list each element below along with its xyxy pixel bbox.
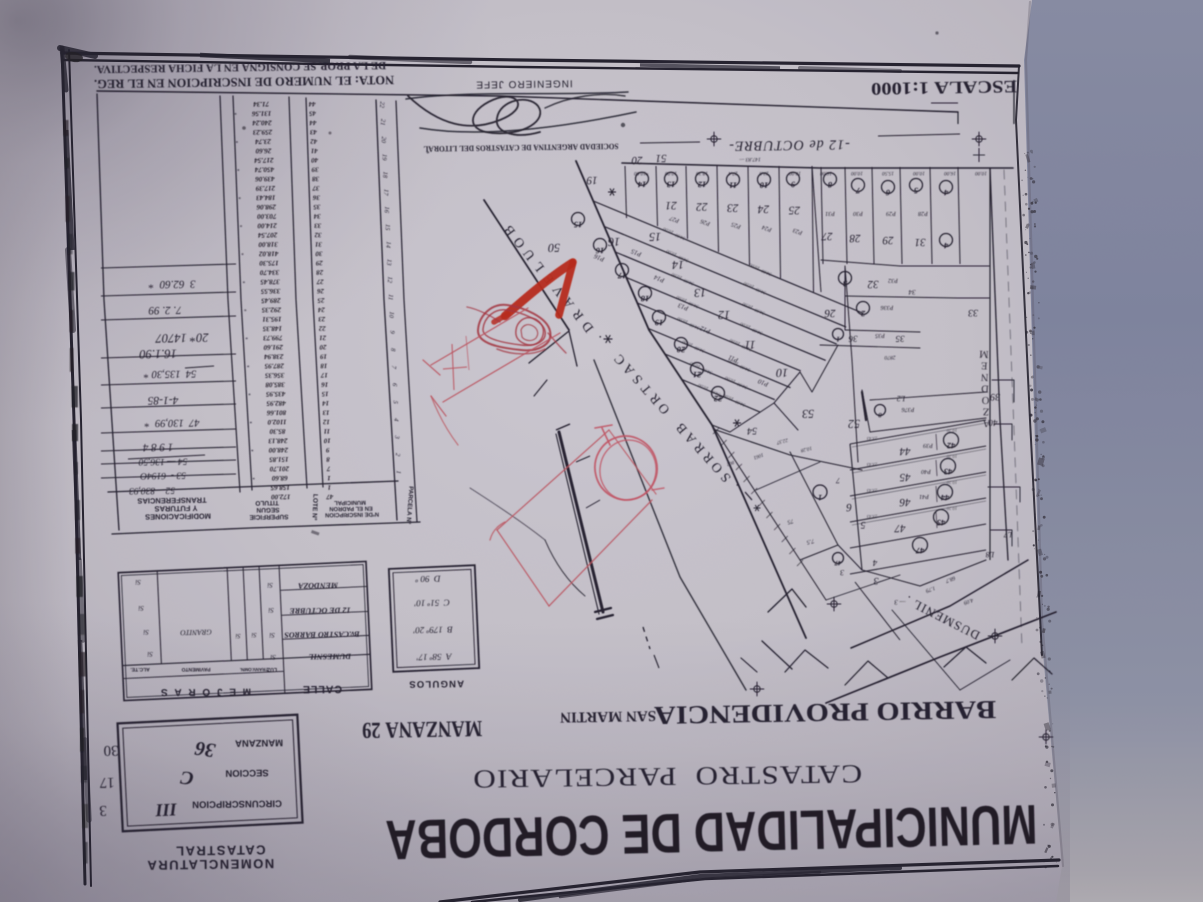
svg-text:35: 35	[313, 203, 321, 210]
svg-text:15: 15	[383, 224, 391, 231]
svg-text:CIRCUNSCRIPCION: CIRCUNSCRIPCION	[192, 797, 282, 809]
svg-text:Z: Z	[982, 405, 989, 416]
svg-text:MODIFICACIONES: MODIFICACIONES	[145, 512, 211, 522]
svg-text:248.00: 248.00	[268, 446, 289, 454]
svg-text:50: 50	[548, 241, 560, 255]
svg-text:37: 37	[312, 184, 320, 191]
svg-text:44: 44	[899, 445, 911, 457]
svg-text:482.95: 482.95	[266, 399, 287, 407]
svg-text:19: 19	[319, 352, 326, 359]
svg-text:CATASTRAL: CATASTRAL	[174, 842, 265, 858]
svg-text:33: 33	[968, 307, 979, 318]
svg-text:Bv.CASTRO BARROS: Bv.CASTRO BARROS	[284, 629, 361, 639]
svg-text:SAN MARTIN: SAN MARTIN	[560, 707, 656, 725]
svg-text:20* 14707: 20* 14707	[155, 330, 209, 345]
svg-text:15: 15	[321, 390, 328, 397]
svg-text:29: 29	[882, 234, 894, 246]
svg-text:54: 54	[747, 425, 757, 436]
svg-text:47: 47	[326, 493, 334, 500]
svg-text:1: 1	[327, 474, 331, 481]
svg-text:207.54: 207.54	[257, 231, 278, 239]
svg-text:Si: Si	[251, 631, 256, 638]
svg-text:378.45: 378.45	[260, 278, 281, 286]
svg-text:PAVIMENTO: PAVIMENTO	[181, 666, 210, 672]
svg-text:27: 27	[316, 278, 324, 285]
svg-text:P40: P40	[921, 468, 932, 475]
svg-text:BARRIO PROVIDENCIA: BARRIO PROVIDENCIA	[654, 695, 997, 730]
svg-text:47: 47	[894, 522, 906, 534]
svg-text:— 3: — 3	[894, 598, 907, 606]
svg-text:TRANV.OMN.: TRANV.OMN.	[240, 667, 269, 672]
svg-text:MANZANA 29: MANZANA 29	[362, 716, 482, 743]
svg-text:SUPERFICIE: SUPERFICIE	[249, 513, 289, 521]
svg-text:17: 17	[99, 774, 115, 790]
svg-text:ESCALA 1:1000: ESCALA 1:1000	[871, 77, 1018, 100]
svg-text:291.60: 291.60	[263, 343, 284, 351]
svg-text:GRANITO: GRANITO	[180, 628, 212, 638]
svg-text:26: 26	[824, 307, 836, 319]
svg-text:39: 39	[311, 165, 319, 172]
svg-text:43: 43	[944, 467, 953, 476]
svg-text:16: 16	[321, 380, 328, 387]
svg-text:4: 4	[944, 188, 949, 197]
svg-text:P32: P32	[888, 277, 899, 283]
svg-text:2870: 2870	[884, 354, 895, 360]
svg-text:M: M	[978, 348, 989, 360]
svg-text:23.74: 23.74	[255, 137, 272, 145]
svg-text:44: 44	[308, 100, 316, 107]
svg-text:TRANSFERENCIAS: TRANSFERENCIAS	[137, 496, 206, 506]
svg-text:46: 46	[899, 496, 911, 508]
svg-text:3: 3	[99, 802, 107, 818]
svg-text:III: III	[154, 800, 178, 821]
svg-text:Si: Si	[143, 628, 149, 636]
svg-text:A 58º 17': A 58º 17'	[415, 652, 452, 663]
svg-text:41: 41	[311, 147, 319, 154]
svg-text:36: 36	[194, 737, 218, 762]
svg-text:9: 9	[791, 180, 795, 189]
svg-text:356.35: 356.35	[265, 371, 286, 379]
svg-text:16.1.90: 16.1.90	[138, 347, 177, 362]
svg-text:Si: Si	[138, 604, 144, 612]
svg-text:439.06: 439.06	[255, 175, 276, 183]
svg-text:10.00: 10.00	[665, 170, 677, 176]
svg-text:22: 22	[318, 324, 326, 331]
svg-text:148.35: 148.35	[262, 324, 282, 332]
svg-text:292.35: 292.35	[261, 306, 282, 314]
svg-text:10: 10	[323, 437, 330, 444]
svg-text:248.13: 248.13	[268, 436, 289, 444]
svg-text:23: 23	[318, 315, 326, 322]
svg-text:P31: P31	[825, 210, 836, 216]
svg-text:M E J O R A S: M E J O R A S	[159, 686, 251, 698]
svg-text:15.50: 15.50	[882, 170, 894, 176]
svg-text:6: 6	[846, 501, 852, 513]
svg-text:34: 34	[313, 212, 321, 219]
svg-text:16: 16	[595, 246, 604, 255]
svg-text:10.00: 10.00	[913, 170, 925, 176]
svg-text:P39: P39	[923, 442, 934, 448]
svg-text:23.43: 23.43	[866, 514, 877, 519]
svg-text:DUMESNIL: DUMESNIL	[309, 652, 352, 662]
svg-text:10.00: 10.00	[634, 170, 646, 176]
svg-text:Si: Si	[147, 650, 153, 658]
svg-text:85.30: 85.30	[269, 427, 285, 435]
svg-text:26: 26	[316, 287, 324, 294]
svg-text:25: 25	[317, 296, 325, 303]
svg-text:5: 5	[860, 519, 865, 530]
svg-text:10: 10	[760, 180, 768, 189]
svg-text:CALLE: CALLE	[302, 683, 342, 695]
svg-text:Si: Si	[268, 606, 274, 614]
svg-text:21: 21	[379, 119, 387, 126]
svg-text:20: 20	[677, 345, 686, 354]
svg-text:15: 15	[574, 220, 582, 229]
svg-text:799.73: 799.73	[263, 334, 283, 342]
svg-text:287.95: 287.95	[264, 362, 285, 370]
svg-text:10.20: 10.20	[946, 506, 957, 511]
svg-text:47: 47	[915, 546, 925, 555]
svg-text:71.34: 71.34	[253, 100, 269, 108]
svg-text:1: 1	[818, 493, 822, 502]
svg-text:P376: P376	[902, 406, 916, 412]
svg-text:36: 36	[848, 334, 859, 344]
svg-text:P28: P28	[918, 210, 929, 216]
svg-text:38: 38	[311, 175, 319, 182]
svg-text:P41: P41	[919, 493, 930, 500]
svg-text:214.00: 214.00	[257, 221, 278, 229]
svg-text:24: 24	[317, 306, 325, 313]
svg-text:42: 42	[310, 137, 318, 144]
svg-text:418.02: 418.02	[258, 249, 279, 257]
svg-text:201.70: 201.70	[269, 465, 290, 473]
svg-text:P35: P35	[875, 332, 886, 338]
svg-text:E: E	[981, 359, 988, 370]
svg-text:238.94: 238.94	[264, 352, 285, 360]
svg-text:20: 20	[319, 343, 327, 350]
svg-text:54 135,30 *: 54 135,30 *	[143, 368, 196, 380]
svg-text:13: 13	[322, 409, 329, 416]
svg-text:53: 53	[802, 407, 814, 421]
svg-text:5: 5	[914, 186, 918, 195]
svg-text:298.06: 298.06	[256, 203, 277, 211]
svg-text:1: 1	[836, 335, 840, 344]
svg-text:Si: Si	[235, 632, 240, 639]
svg-text:18: 18	[320, 362, 327, 369]
svg-text:1: 1	[328, 483, 332, 490]
svg-text:21: 21	[665, 199, 677, 211]
svg-text:31: 31	[914, 236, 926, 248]
svg-text:40: 40	[311, 156, 319, 163]
svg-text:20: 20	[631, 154, 643, 166]
svg-text:23.6: 23.6	[759, 170, 769, 176]
svg-text:LOTE Nº: LOTE Nº	[311, 494, 319, 521]
svg-text:318.00: 318.00	[258, 240, 279, 248]
svg-text:52 - 830,93: 52 - 830,93	[129, 485, 175, 496]
svg-text:23.43: 23.43	[866, 488, 877, 493]
svg-text:13: 13	[667, 180, 675, 189]
svg-text:32: 32	[314, 231, 322, 238]
svg-text:44: 44	[941, 493, 950, 502]
svg-text:18: 18	[640, 294, 649, 303]
svg-text:289.45: 289.45	[261, 296, 282, 304]
svg-text:26.60: 26.60	[255, 147, 272, 155]
svg-text:29: 29	[315, 259, 323, 266]
svg-text:D 90 º: D 90 º	[415, 574, 441, 585]
svg-text:44: 44	[309, 119, 317, 126]
svg-text:10.20: 10.20	[946, 454, 957, 459]
svg-text:23.43: 23.43	[866, 462, 877, 467]
svg-text:ANGULOS: ANGULOS	[408, 678, 464, 690]
svg-text:Si: Si	[135, 578, 141, 586]
svg-text:151.85: 151.85	[269, 455, 289, 463]
svg-text:23.43: 23.43	[866, 436, 877, 441]
svg-text:2: 2	[861, 309, 866, 318]
svg-text:12: 12	[698, 180, 706, 189]
svg-text:Si: Si	[270, 653, 276, 661]
svg-text:4: 4	[944, 241, 949, 250]
svg-text:21: 21	[319, 334, 327, 341]
svg-text:336.55: 336.55	[260, 287, 281, 295]
svg-text:CATASTRO PARCELARIO: CATASTRO PARCELARIO	[472, 759, 862, 793]
svg-text:17: 17	[320, 371, 327, 378]
svg-text:385.08: 385.08	[265, 380, 286, 388]
svg-text:P336: P336	[881, 304, 895, 310]
svg-text:10.00: 10.00	[851, 170, 863, 176]
svg-text:45: 45	[308, 109, 316, 116]
svg-text:Si: Si	[269, 631, 275, 639]
svg-text:14: 14	[638, 180, 646, 189]
svg-text:40: 40	[988, 418, 998, 428]
svg-text:12: 12	[322, 418, 329, 425]
svg-text:10.00: 10.00	[789, 170, 801, 176]
svg-text:11: 11	[729, 180, 737, 189]
svg-text:36: 36	[312, 193, 320, 200]
svg-text:16: 16	[608, 235, 620, 249]
svg-text:435.95: 435.95	[265, 390, 286, 398]
svg-text:24: 24	[757, 203, 769, 215]
svg-text:10.00: 10.00	[975, 170, 987, 176]
svg-text:L8: L8	[986, 550, 996, 559]
svg-text:11: 11	[387, 294, 395, 301]
svg-text:32: 32	[867, 278, 880, 290]
svg-text:10.20: 10.20	[946, 480, 957, 485]
svg-text:B 179º 20': B 179º 20'	[412, 625, 453, 636]
svg-text:18.30: 18.30	[696, 170, 708, 176]
svg-text:259.23: 259.23	[252, 128, 273, 136]
svg-text:10.20: 10.20	[946, 428, 957, 433]
svg-text:175.30: 175.30	[259, 259, 279, 267]
svg-text:1102.0: 1102.0	[267, 418, 286, 426]
svg-text:51: 51	[655, 152, 666, 164]
svg-text:19: 19	[586, 174, 598, 186]
svg-text:16.00: 16.00	[944, 170, 956, 176]
svg-text:MUNICIPAL: MUNICIPAL	[334, 499, 366, 505]
svg-text:4: 4	[872, 558, 877, 568]
svg-text:27: 27	[821, 230, 833, 242]
svg-text:28: 28	[849, 232, 861, 244]
svg-text:703.00: 703.00	[257, 212, 277, 220]
svg-text:1 9 8 4: 1 9 8 4	[142, 441, 173, 453]
svg-text:C 51º 10': C 51º 10'	[413, 598, 450, 609]
svg-text:17: 17	[617, 271, 626, 280]
svg-text:3: 3	[393, 434, 400, 439]
svg-text:43: 43	[309, 128, 317, 135]
svg-text:3: 3	[873, 575, 879, 586]
svg-text:P29: P29	[886, 210, 897, 216]
svg-text:47: 47	[834, 559, 842, 566]
svg-text:45: 45	[937, 518, 946, 527]
svg-text:ALC.TE.: ALC.TE.	[130, 666, 150, 672]
svg-text:7. 2. 99: 7. 2. 99	[148, 304, 182, 316]
svg-text:42: 42	[947, 441, 956, 450]
svg-text:22: 22	[696, 200, 708, 212]
svg-text:21: 21	[693, 370, 702, 379]
svg-text:L7: L7	[1003, 530, 1014, 539]
svg-text:14: 14	[322, 399, 329, 406]
svg-text:-12 de OCTUBRE-: -12 de OCTUBRE-	[728, 136, 850, 153]
svg-text:47 130,99 *: 47 130,99 *	[144, 417, 200, 429]
svg-text:19: 19	[655, 318, 663, 327]
svg-text:O: O	[981, 394, 990, 405]
svg-text:68.60: 68.60	[271, 474, 287, 482]
svg-text:147.83 —: 147.83 —	[739, 156, 761, 163]
svg-text:217.54: 217.54	[254, 156, 275, 164]
svg-text:MANZANA: MANZANA	[235, 737, 283, 749]
svg-text:15: 15	[649, 230, 661, 244]
svg-text:25: 25	[788, 204, 800, 216]
svg-text:N: N	[980, 371, 989, 382]
svg-text:33: 33	[314, 221, 322, 228]
svg-text:10: 10	[776, 366, 788, 380]
svg-text:34: 34	[908, 288, 917, 296]
svg-text:52: 52	[848, 417, 860, 431]
svg-text:3: 3	[843, 279, 848, 288]
svg-text:131.56: 131.56	[251, 109, 271, 117]
svg-text:P30: P30	[853, 210, 864, 216]
svg-text:30: 30	[315, 250, 323, 257]
svg-text:31: 31	[315, 240, 323, 247]
svg-text:4-1-85: 4-1-85	[147, 394, 178, 406]
svg-text:13: 13	[694, 286, 706, 300]
svg-text:30: 30	[103, 742, 118, 758]
svg-text:334.70: 334.70	[259, 268, 280, 276]
svg-text:3: 3	[840, 568, 845, 577]
svg-text:172.00: 172.00	[271, 493, 291, 501]
svg-text:Si: Si	[267, 581, 273, 589]
svg-text:27.4: 27.4	[728, 170, 738, 177]
svg-text:INGENIERO JEFE: INGENIERO JEFE	[475, 77, 573, 89]
svg-text:240.24: 240.24	[252, 119, 273, 127]
svg-text:39: 39	[990, 391, 1001, 402]
svg-text:28: 28	[316, 268, 324, 275]
svg-text:SECCION: SECCION	[225, 767, 269, 779]
svg-text:217.39: 217.39	[255, 184, 276, 192]
svg-text:45: 45	[899, 471, 911, 483]
svg-text:450.74: 450.74	[254, 165, 275, 173]
svg-text:53 - 6194O: 53 - 6194O	[140, 470, 186, 481]
svg-text:11: 11	[324, 427, 331, 434]
svg-text:12 DE OCTUBRE: 12 DE OCTUBRE	[290, 606, 351, 616]
svg-text:801.66: 801.66	[266, 408, 286, 416]
svg-text:MENDOZA: MENDOZA	[297, 581, 339, 591]
svg-text:12: 12	[718, 308, 730, 322]
svg-text:158.65: 158.65	[270, 483, 290, 491]
svg-text:35: 35	[895, 334, 906, 344]
svg-text:184.43: 184.43	[256, 193, 276, 201]
svg-text:23: 23	[727, 201, 739, 213]
svg-text:195.31: 195.31	[262, 315, 281, 323]
svg-text:3 62.60 *: 3 62.60 *	[148, 278, 196, 291]
svg-text:13: 13	[385, 259, 393, 266]
